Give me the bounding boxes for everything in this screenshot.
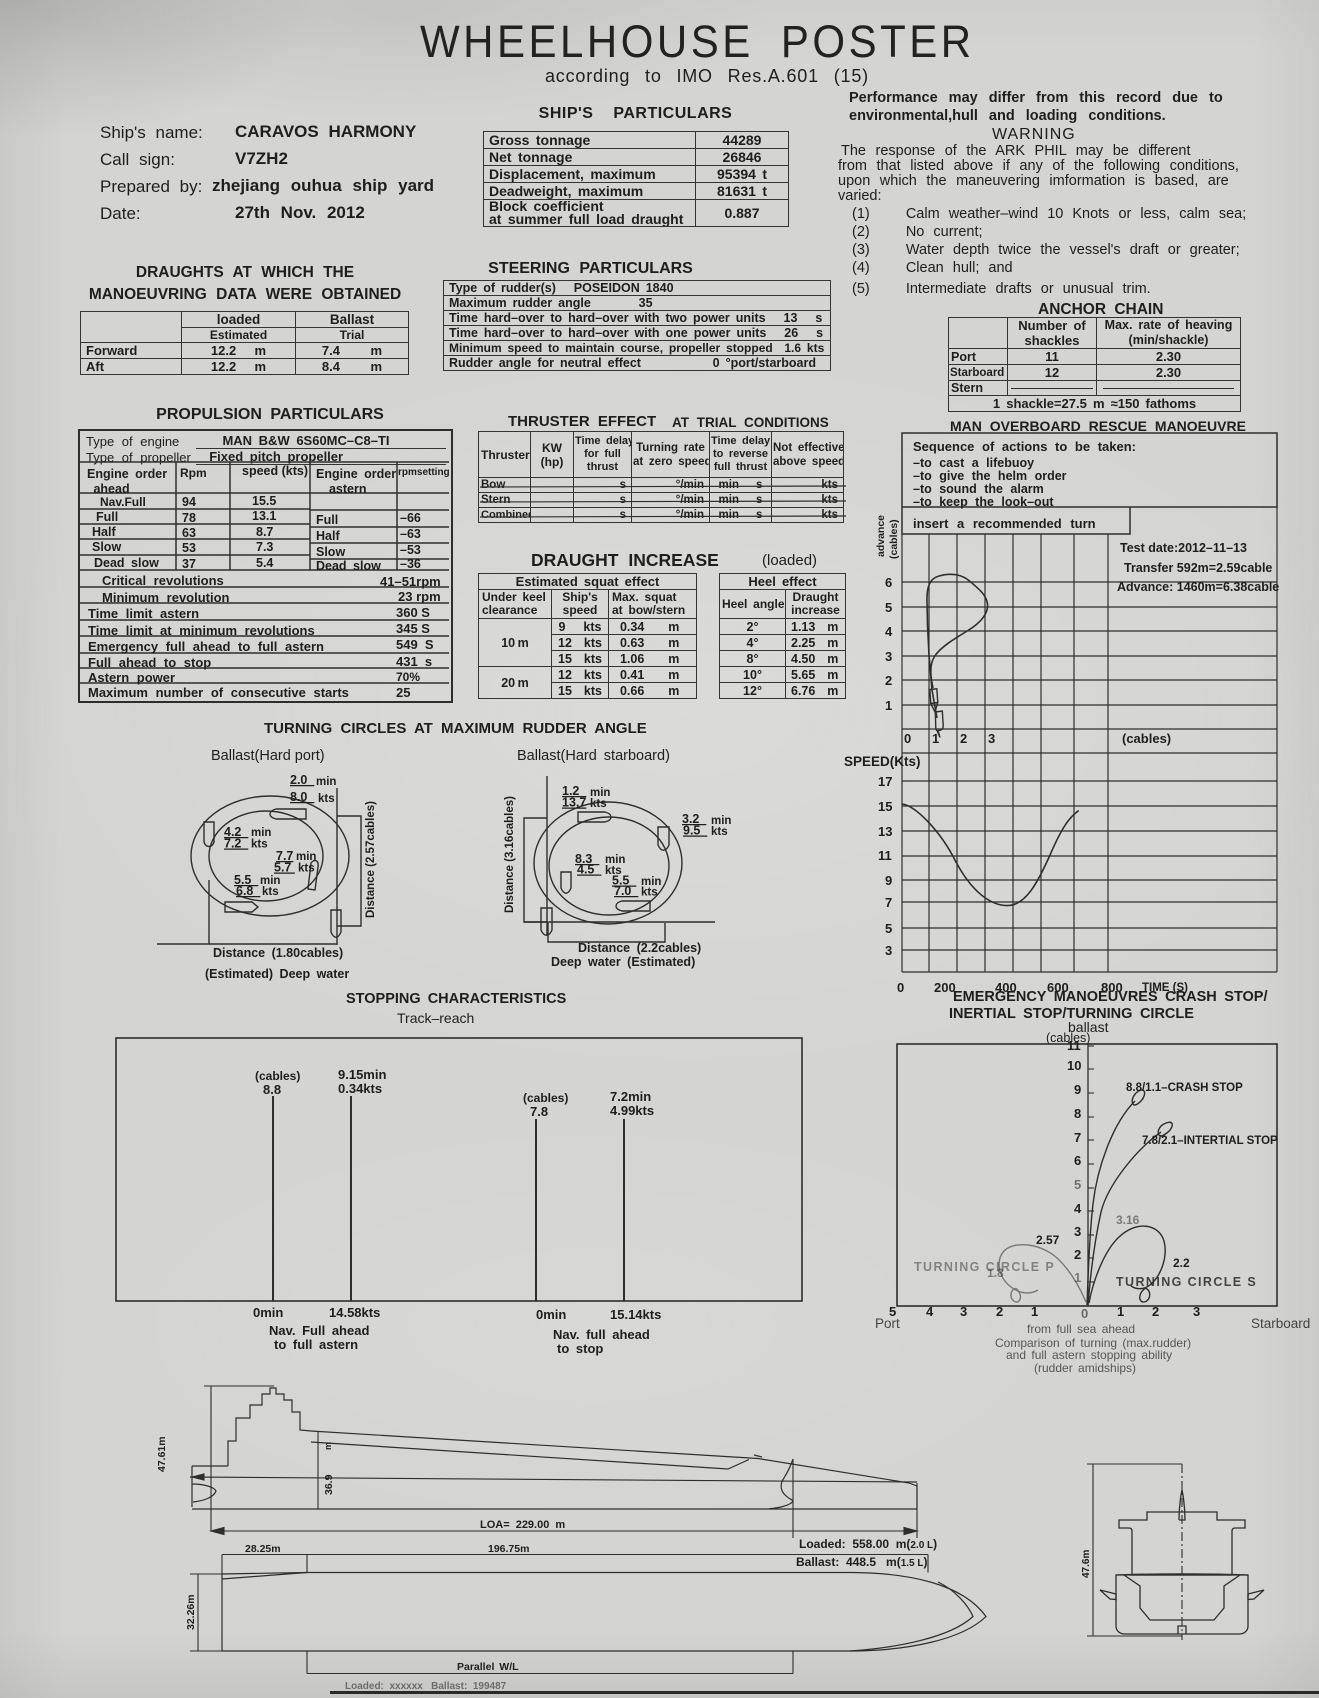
svg-text:6.8: 6.8 (236, 884, 260, 898)
svg-text:kts: kts (298, 863, 315, 875)
svg-text:–to cast a lifebuoy: –to cast a lifebuoy (913, 456, 1034, 470)
svg-text:(cables): (cables) (1122, 731, 1171, 746)
svg-text:2: 2 (1074, 1247, 1081, 1262)
svg-text:kts: kts (318, 793, 335, 805)
svg-text:–to sound the alarm: –to sound the alarm (913, 482, 1044, 496)
svg-text:3: 3 (885, 649, 892, 664)
svg-text:–to give the helm order: –to give the helm order (913, 469, 1067, 483)
svg-text:9: 9 (1074, 1082, 1081, 1097)
svg-text:10: 10 (1067, 1058, 1081, 1073)
svg-text:Sequence of actions to be take: Sequence of actions to be taken: (913, 439, 1136, 454)
svg-text:kts: kts (251, 839, 268, 851)
svg-text:7.8: 7.8 (530, 1104, 548, 1119)
svg-text:(cables): (cables) (523, 1091, 568, 1105)
svg-text:4: 4 (1074, 1201, 1082, 1216)
svg-text:1: 1 (1074, 1270, 1081, 1285)
svg-text:min: min (316, 776, 336, 788)
svg-text:5: 5 (885, 921, 892, 936)
svg-text:(cables): (cables) (888, 519, 900, 559)
svg-text:to stop: to stop (557, 1341, 603, 1356)
svg-text:14.58kts: 14.58kts (329, 1305, 380, 1320)
svg-text:Parallel W/L: Parallel W/L (457, 1661, 519, 1673)
svg-text:4.5: 4.5 (577, 863, 601, 877)
svg-text:15.14kts: 15.14kts (610, 1307, 661, 1322)
svg-text:TURNING CIRCLE S: TURNING CIRCLE S (1116, 1275, 1257, 1289)
svg-text:47.61m: 47.61m (156, 1436, 168, 1472)
svg-text:5: 5 (1074, 1177, 1081, 1192)
svg-text:0: 0 (1081, 1306, 1088, 1321)
svg-text:8.0: 8.0 (290, 790, 314, 804)
svg-text:0min: 0min (536, 1307, 566, 1322)
svg-text:Nav. Full ahead: Nav. Full ahead (269, 1323, 369, 1338)
svg-text:Starboard: Starboard (1251, 1316, 1310, 1331)
svg-text:2: 2 (996, 1304, 1003, 1319)
svg-text:11: 11 (1067, 1038, 1081, 1053)
svg-text:Distance (3.16cables): Distance (3.16cables) (504, 796, 516, 913)
svg-text:28.25m: 28.25m (245, 1543, 281, 1555)
svg-text:6: 6 (885, 575, 892, 590)
svg-text:7.2min: 7.2min (610, 1089, 651, 1104)
svg-text:3: 3 (988, 731, 995, 746)
svg-text:Distance (2.2cables): Distance (2.2cables) (578, 941, 701, 955)
svg-text:Advance: 1460m=6.38cable: Advance: 1460m=6.38cable (1117, 580, 1279, 594)
svg-text:min: min (296, 851, 316, 863)
svg-text:kts: kts (711, 826, 728, 838)
svg-text:0.34kts: 0.34kts (338, 1081, 382, 1096)
svg-text:0: 0 (904, 731, 911, 746)
svg-text:8.8/1.1–CRASH STOP: 8.8/1.1–CRASH STOP (1126, 1082, 1243, 1094)
svg-text:SPEED(Kts): SPEED(Kts) (844, 754, 921, 769)
svg-text:to full astern: to full astern (274, 1337, 358, 1352)
svg-text:9.5: 9.5 (683, 824, 707, 838)
svg-text:Deep water (Estimated): Deep water (Estimated) (551, 955, 695, 969)
svg-text:kts: kts (590, 798, 607, 810)
svg-text:3: 3 (1193, 1304, 1200, 1319)
svg-text:5: 5 (885, 600, 892, 615)
svg-text:1: 1 (885, 698, 892, 713)
svg-text:17: 17 (878, 774, 892, 789)
svg-text:3: 3 (960, 1304, 967, 1319)
svg-text:Distance (1.80cables): Distance (1.80cables) (213, 946, 343, 960)
svg-text:36.9: 36.9 (323, 1474, 335, 1495)
svg-text:2.0: 2.0 (290, 773, 314, 787)
svg-text:(rudder amidships): (rudder amidships) (1034, 1361, 1136, 1375)
svg-text:kts: kts (641, 887, 658, 899)
svg-text:6: 6 (1074, 1153, 1081, 1168)
svg-text:7: 7 (885, 895, 892, 910)
svg-text:advance: advance (875, 515, 887, 557)
svg-text:TURNING CIRCLE P: TURNING CIRCLE P (914, 1260, 1055, 1274)
svg-text:8.8: 8.8 (263, 1082, 281, 1097)
svg-text:Test date:2012–11–13: Test date:2012–11–13 (1120, 541, 1247, 555)
svg-text:(Estimated) Deep water: (Estimated) Deep water (205, 967, 349, 981)
svg-text:7.8/2.1–INTERTIAL STOP: 7.8/2.1–INTERTIAL STOP (1142, 1135, 1278, 1147)
svg-text:4: 4 (926, 1304, 934, 1319)
svg-text:9: 9 (885, 873, 892, 888)
svg-text:0min: 0min (253, 1305, 283, 1320)
svg-text:kts: kts (262, 886, 279, 898)
svg-text:47.6m: 47.6m (1081, 1550, 1092, 1578)
svg-text:11: 11 (878, 848, 892, 863)
svg-text:2.57: 2.57 (1036, 1233, 1060, 1247)
svg-text:5.7: 5.7 (274, 861, 295, 875)
svg-text:196.75m: 196.75m (488, 1543, 529, 1555)
svg-text:32.26m: 32.26m (185, 1594, 197, 1630)
svg-text:insert a recommended turn: insert a recommended turn (913, 516, 1096, 531)
svg-text:15: 15 (878, 799, 892, 814)
svg-text:–to keep the look–out: –to keep the look–out (913, 495, 1054, 509)
svg-text:1: 1 (1031, 1304, 1038, 1319)
svg-text:2: 2 (960, 731, 967, 746)
svg-text:3.16: 3.16 (1116, 1213, 1140, 1227)
svg-text:7.2: 7.2 (224, 837, 248, 851)
svg-text:0: 0 (897, 980, 904, 995)
svg-text:7: 7 (1074, 1130, 1081, 1145)
svg-text:7.0: 7.0 (614, 884, 638, 898)
svg-text:(cables): (cables) (255, 1069, 300, 1083)
svg-text:LOA= 229.00 m: LOA= 229.00 m (480, 1519, 565, 1531)
svg-text:and full astern stopping abili: and full astern stopping ability (1006, 1348, 1172, 1362)
svg-text:9.15min: 9.15min (338, 1067, 386, 1082)
svg-text:4.99kts: 4.99kts (610, 1103, 654, 1118)
svg-text:Port: Port (875, 1316, 900, 1331)
svg-text:13: 13 (878, 824, 892, 839)
svg-text:from full sea ahead: from full sea ahead (1027, 1322, 1135, 1336)
svg-text:1: 1 (1117, 1304, 1124, 1319)
svg-text:Transfer 592m=2.59cable: Transfer 592m=2.59cable (1124, 561, 1272, 575)
svg-text:2: 2 (1152, 1304, 1159, 1319)
svg-text:2.2: 2.2 (1173, 1256, 1190, 1270)
svg-text:3: 3 (1074, 1224, 1081, 1239)
svg-text:Distance (2.57cables): Distance (2.57cables) (365, 801, 377, 918)
svg-text:min: min (251, 827, 271, 839)
svg-text:4: 4 (885, 624, 893, 639)
svg-text:13.7: 13.7 (562, 796, 586, 810)
svg-text:2: 2 (885, 673, 892, 688)
svg-text:3: 3 (885, 943, 892, 958)
svg-text:8: 8 (1074, 1106, 1081, 1121)
svg-text:Nav. full ahead: Nav. full ahead (553, 1327, 650, 1342)
svg-text:m: m (323, 1442, 333, 1450)
